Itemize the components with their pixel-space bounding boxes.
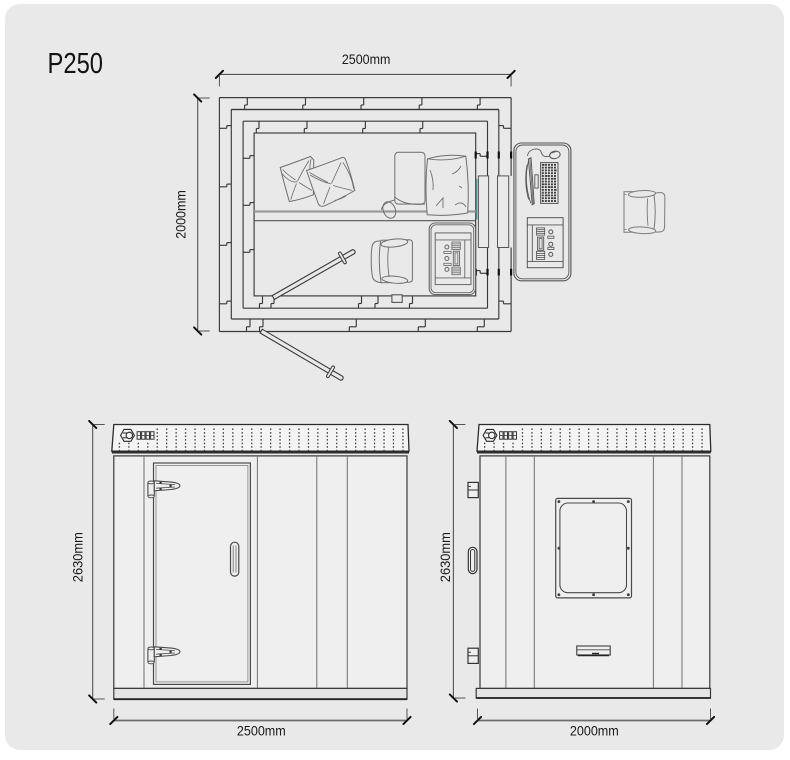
svg-text:P250: P250 — [48, 48, 104, 80]
svg-text:2500mm: 2500mm — [342, 52, 391, 68]
svg-text:2500mm: 2500mm — [237, 723, 286, 739]
svg-text:2630mm: 2630mm — [438, 532, 454, 582]
svg-text:2000mm: 2000mm — [173, 190, 189, 239]
svg-text:2000mm: 2000mm — [570, 723, 619, 739]
svg-text:2630mm: 2630mm — [70, 532, 86, 582]
